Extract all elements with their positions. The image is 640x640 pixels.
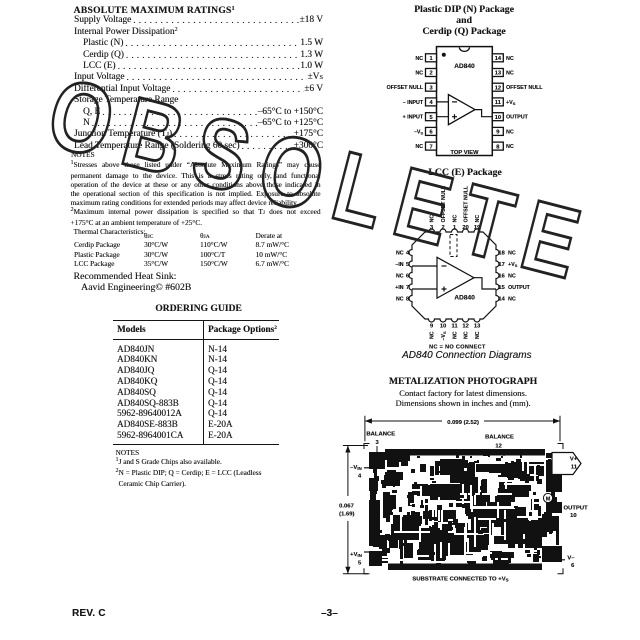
svg-text:M: M bbox=[546, 496, 551, 502]
svg-text:17: 17 bbox=[498, 262, 504, 268]
svg-text:–VS: –VS bbox=[414, 129, 423, 135]
svg-text:NC: NC bbox=[508, 274, 516, 280]
svg-text:+VS: +VS bbox=[506, 100, 516, 106]
svg-text:15: 15 bbox=[498, 285, 505, 291]
svg-text:7: 7 bbox=[406, 285, 409, 291]
svg-text:10: 10 bbox=[570, 513, 577, 519]
svg-text:V–: V– bbox=[567, 556, 575, 562]
svg-text:NC: NC bbox=[475, 215, 481, 223]
svg-text:OUTPUT: OUTPUT bbox=[563, 506, 588, 512]
svg-text:0.099 (2.52): 0.099 (2.52) bbox=[447, 420, 479, 426]
svg-text:NC: NC bbox=[506, 56, 514, 62]
svg-text:2: 2 bbox=[441, 225, 444, 231]
svg-text:NC: NC bbox=[415, 71, 423, 77]
svg-text:13: 13 bbox=[474, 324, 481, 330]
svg-text:NC: NC bbox=[452, 215, 458, 223]
svg-text:BALANCE: BALANCE bbox=[366, 432, 395, 438]
svg-text:AD840: AD840 bbox=[454, 295, 475, 302]
svg-text:20: 20 bbox=[462, 225, 468, 231]
svg-text:NC: NC bbox=[396, 297, 404, 303]
svg-text:OFFSET NULL: OFFSET NULL bbox=[387, 85, 424, 91]
svg-text:NC: NC bbox=[429, 215, 435, 223]
svg-text:7: 7 bbox=[429, 144, 432, 150]
svg-text:9: 9 bbox=[430, 324, 434, 330]
svg-text:+VIN: +VIN bbox=[350, 552, 362, 558]
svg-text:14: 14 bbox=[498, 297, 505, 303]
svg-text:NC: NC bbox=[429, 331, 435, 339]
svg-text:+VS: +VS bbox=[508, 262, 518, 268]
svg-text:5: 5 bbox=[358, 561, 362, 567]
svg-text:NC: NC bbox=[396, 251, 404, 257]
svg-text:14: 14 bbox=[495, 56, 502, 62]
svg-text:BALANCE: BALANCE bbox=[485, 435, 514, 441]
svg-text:12: 12 bbox=[495, 444, 502, 450]
svg-text:19: 19 bbox=[474, 225, 481, 231]
svg-text:16: 16 bbox=[498, 274, 505, 280]
svg-text:18: 18 bbox=[498, 251, 505, 257]
svg-text:–VIN: –VIN bbox=[350, 465, 362, 471]
svg-text:13: 13 bbox=[495, 71, 502, 77]
svg-text:NC: NC bbox=[452, 331, 458, 339]
svg-text:OFFSET NULL: OFFSET NULL bbox=[463, 185, 469, 222]
svg-text:SUBSTRATE CONNECTED TO +VS: SUBSTRATE CONNECTED TO +VS bbox=[412, 577, 508, 583]
svg-text:11: 11 bbox=[571, 465, 578, 471]
svg-text:OUTPUT: OUTPUT bbox=[508, 285, 531, 291]
svg-text:TOP VIEW: TOP VIEW bbox=[450, 150, 479, 156]
svg-text:NC: NC bbox=[463, 331, 469, 339]
svg-text:11: 11 bbox=[495, 100, 502, 106]
svg-text:12: 12 bbox=[495, 85, 501, 91]
svg-text:10: 10 bbox=[440, 324, 446, 330]
svg-text:NC: NC bbox=[508, 251, 516, 257]
svg-text:–IN: –IN bbox=[395, 262, 403, 268]
svg-text:OFFSET NULL: OFFSET NULL bbox=[506, 85, 543, 91]
svg-text:OFFSET NULL: OFFSET NULL bbox=[441, 185, 447, 222]
svg-text:NC: NC bbox=[506, 71, 514, 77]
svg-text:AD840: AD840 bbox=[454, 63, 475, 70]
svg-text:OUTPUT: OUTPUT bbox=[506, 115, 529, 121]
svg-text:NC: NC bbox=[508, 297, 516, 303]
svg-text:+IN: +IN bbox=[395, 285, 404, 291]
svg-text:4: 4 bbox=[358, 474, 362, 480]
svg-text:NC: NC bbox=[396, 274, 404, 280]
svg-text:NC: NC bbox=[506, 129, 514, 135]
svg-text:0.067: 0.067 bbox=[339, 504, 354, 510]
svg-text:(1.69): (1.69) bbox=[339, 512, 354, 518]
svg-text:V+: V+ bbox=[570, 457, 578, 463]
svg-text:NC: NC bbox=[415, 144, 423, 150]
svg-text:NC: NC bbox=[475, 331, 481, 339]
svg-text:NC: NC bbox=[415, 56, 423, 62]
svg-text:– INPUT: – INPUT bbox=[403, 100, 424, 106]
svg-text:6: 6 bbox=[571, 563, 575, 569]
svg-text:12: 12 bbox=[462, 324, 468, 330]
svg-text:11: 11 bbox=[451, 324, 458, 330]
svg-text:10: 10 bbox=[495, 115, 501, 121]
svg-text:NC: NC bbox=[506, 144, 514, 150]
svg-text:2: 2 bbox=[429, 71, 432, 77]
svg-text:+ INPUT: + INPUT bbox=[403, 115, 424, 121]
svg-text:–VS: –VS bbox=[441, 331, 447, 340]
svg-text:3: 3 bbox=[375, 440, 379, 446]
